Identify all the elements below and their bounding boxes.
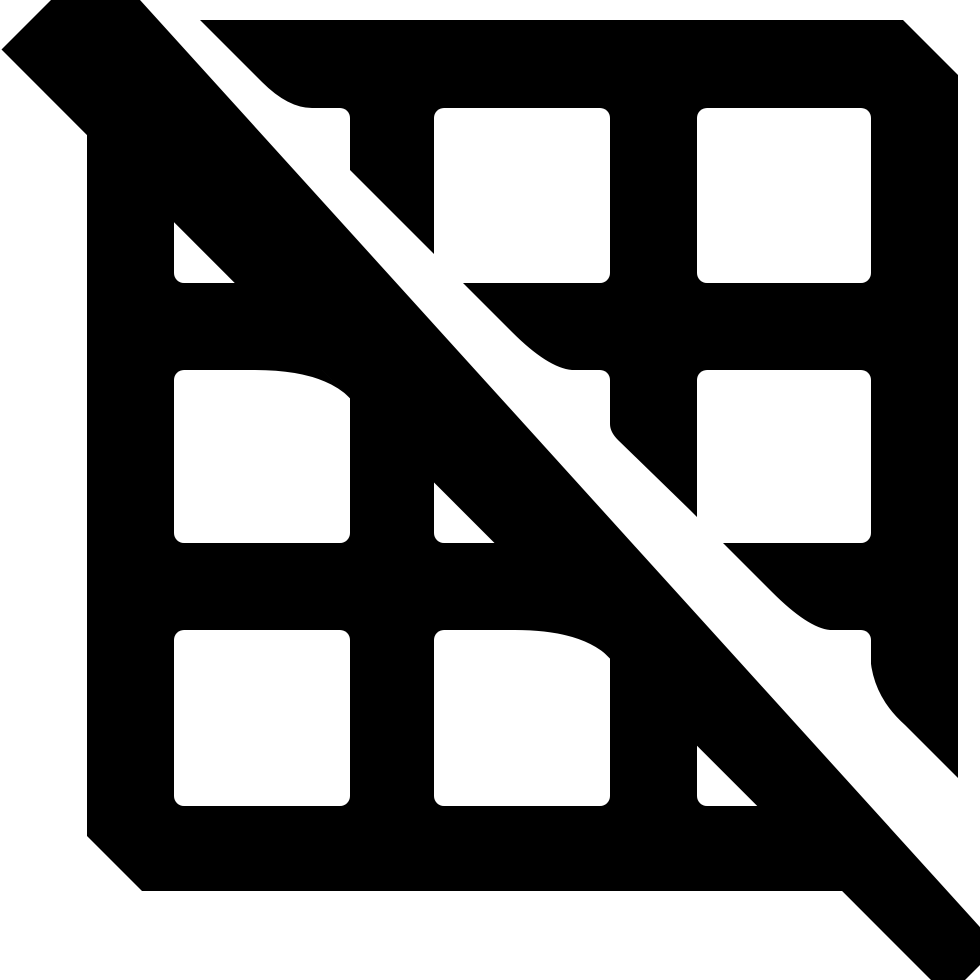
grid-off-icon [0,0,980,980]
grid-cell [697,370,871,543]
grid-cell [174,630,350,806]
grid-cell [434,630,610,806]
grid-cell [697,108,871,283]
grid-cell [434,108,610,283]
grid-cell [174,370,350,543]
icon-canvas [0,0,980,980]
